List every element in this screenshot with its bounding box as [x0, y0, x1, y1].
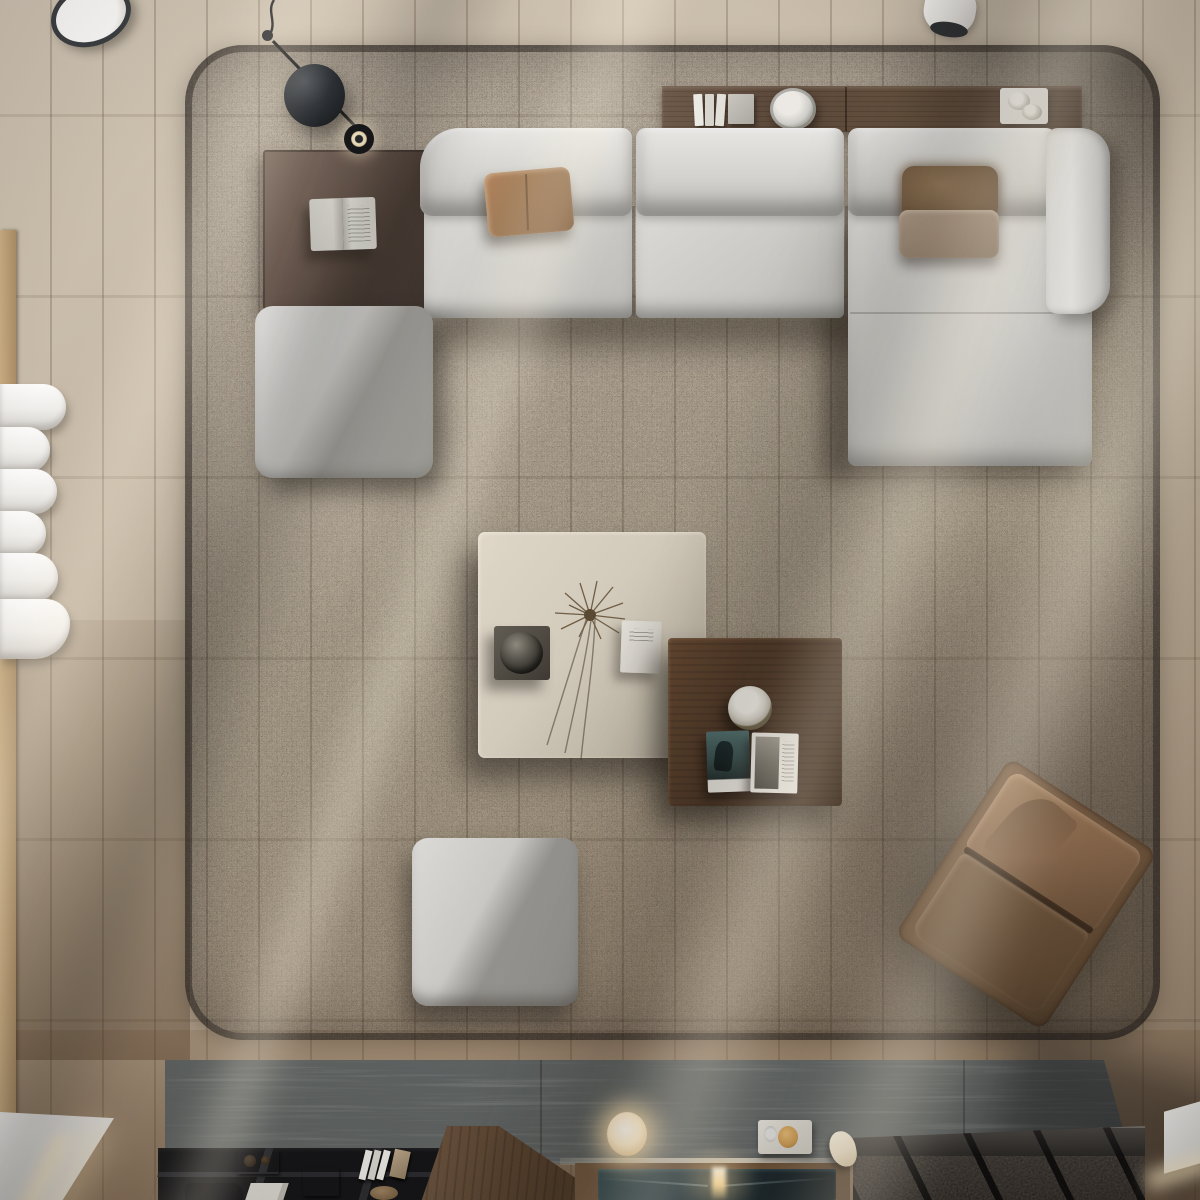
pendant-lamp-disc [284, 64, 345, 127]
dark-tray [494, 626, 550, 680]
wood-floor-left-zone [0, 620, 190, 1060]
sofa-module-seam [632, 206, 635, 316]
lamp-cable-anchor [262, 30, 273, 41]
ottoman-top-left [255, 306, 433, 478]
open-book [309, 197, 377, 251]
ceramic-cup [728, 686, 772, 730]
ottoman-bottom-left [412, 838, 578, 1006]
magazine-teal [706, 730, 751, 792]
wall-sculpture-fold [0, 553, 58, 602]
magazine-cover-figure [713, 740, 734, 772]
living-room-top-view [0, 0, 1200, 1200]
plate-ring [313, 1174, 329, 1190]
dessert-tray [758, 1120, 812, 1154]
sofa-armrest-right [1046, 128, 1110, 314]
knob [261, 1156, 270, 1165]
console-book [705, 94, 714, 126]
console-seam [845, 87, 847, 131]
console-tray [770, 88, 816, 130]
sofa-back-cushion-middle [636, 128, 844, 216]
lamp-led-ring-inner [351, 131, 367, 147]
wall-sculpture-fold [0, 469, 57, 514]
knob [244, 1155, 256, 1167]
magazine-white [750, 732, 799, 793]
bowl [1022, 104, 1042, 120]
dark-pouch [185, 1183, 243, 1200]
pastry [778, 1126, 798, 1148]
wood-bowl [370, 1186, 398, 1200]
bowl [500, 632, 543, 674]
sofa-seat-middle [636, 204, 844, 318]
booklet-text [629, 629, 653, 642]
sofa-module-seam [845, 206, 848, 316]
wood-plate [303, 1168, 339, 1196]
console-box [728, 94, 754, 124]
magazine-cover-photo [754, 736, 779, 789]
console-bowls-tray [1000, 88, 1048, 124]
bench-seam [540, 1060, 542, 1162]
magazine-text [782, 741, 795, 781]
wall-sculpture-fold [0, 427, 50, 472]
white-folders [245, 1183, 289, 1200]
booklet [620, 620, 662, 673]
bronze-box [237, 1150, 279, 1174]
console-book [693, 94, 704, 126]
wall-sculpture-fold [0, 511, 46, 556]
sphere-lamp [607, 1112, 647, 1156]
pillow-seam [525, 174, 529, 230]
wall-sculpture-fold [0, 384, 66, 430]
glass-display-case [853, 1126, 1145, 1200]
velvet-pillow [899, 210, 999, 258]
book-page-left [309, 198, 344, 251]
leather-pillow [483, 166, 574, 237]
cabinet-strip [0, 230, 16, 1200]
book-text-lines [347, 205, 370, 242]
small-plate [764, 1126, 777, 1142]
fireplace-beam [712, 1167, 726, 1200]
